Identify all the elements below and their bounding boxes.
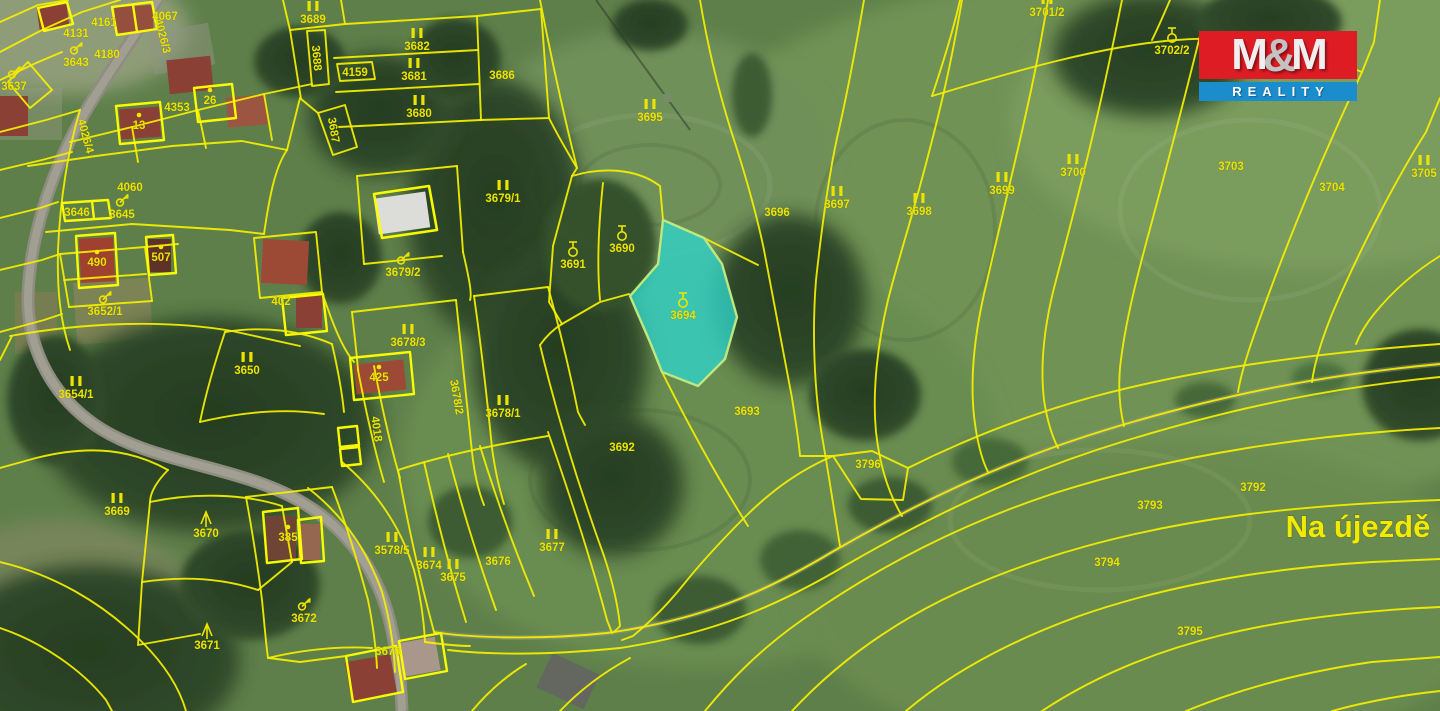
- svg-text:402: 402: [271, 296, 290, 308]
- logo-ampersand: &: [1263, 33, 1293, 77]
- svg-text:3654/1: 3654/1: [58, 389, 94, 401]
- svg-text:3678/3: 3678/3: [390, 337, 425, 349]
- svg-text:3702/2: 3702/2: [1154, 45, 1189, 57]
- parcel-label-4131: 4131: [63, 28, 89, 40]
- svg-text:3646: 3646: [64, 207, 90, 219]
- parcel-label-3794: 3794: [1094, 557, 1120, 569]
- parcel-label-3792: 3792: [1240, 482, 1266, 494]
- svg-text:4159: 4159: [342, 67, 368, 79]
- svg-text:3674: 3674: [416, 560, 442, 572]
- svg-text:3675: 3675: [440, 572, 466, 584]
- svg-text:3686: 3686: [489, 70, 515, 82]
- svg-text:3679/2: 3679/2: [385, 267, 420, 279]
- svg-text:26: 26: [204, 95, 217, 107]
- svg-text:3678/1: 3678/1: [485, 408, 521, 420]
- svg-text:3703: 3703: [1218, 161, 1244, 173]
- svg-text:3699: 3699: [989, 185, 1015, 197]
- parcel-label-3795: 3795: [1177, 626, 1203, 638]
- parcel-label-3704: 3704: [1319, 182, 1345, 194]
- parcel-label-3703: 3703: [1218, 161, 1244, 173]
- parcel-label-4060: 4060: [117, 182, 143, 194]
- svg-text:3673: 3673: [375, 646, 401, 658]
- svg-text:3705: 3705: [1411, 168, 1437, 180]
- svg-text:3650: 3650: [234, 365, 260, 377]
- parcel-label-3793: 3793: [1137, 500, 1163, 512]
- parcel-label-4353: 4353: [164, 102, 190, 114]
- svg-text:4353: 4353: [164, 102, 190, 114]
- svg-text:3692: 3692: [609, 442, 635, 454]
- map-viewport[interactable]: 4067413141614180364336374026/34026/41326…: [0, 0, 1440, 711]
- svg-text:3681: 3681: [401, 71, 427, 83]
- parcel-label-3696: 3696: [764, 207, 790, 219]
- parcel-label-3673: 3673: [375, 646, 401, 658]
- svg-text:3688: 3688: [309, 45, 323, 72]
- parcel-label-4180: 4180: [94, 49, 120, 61]
- svg-text:3643: 3643: [63, 57, 89, 69]
- svg-text:507: 507: [151, 252, 170, 264]
- svg-text:4060: 4060: [117, 182, 143, 194]
- svg-text:4131: 4131: [63, 28, 89, 40]
- svg-text:3676: 3676: [485, 556, 511, 568]
- svg-text:3695: 3695: [637, 112, 663, 124]
- svg-text:3696: 3696: [764, 207, 790, 219]
- parcel-label-3693: 3693: [734, 406, 760, 418]
- logo-m1: M: [1231, 33, 1265, 77]
- svg-text:425: 425: [369, 372, 389, 384]
- svg-text:3701/2: 3701/2: [1029, 7, 1064, 19]
- cadastral-map[interactable]: 4067413141614180364336374026/34026/41326…: [0, 0, 1440, 711]
- svg-text:3637: 3637: [1, 81, 27, 93]
- svg-text:3669: 3669: [104, 506, 130, 518]
- svg-text:3690: 3690: [609, 243, 635, 255]
- parcel-label-3688: 3688: [309, 45, 323, 72]
- parcel-label-3676: 3676: [485, 556, 511, 568]
- svg-text:3679/1: 3679/1: [485, 193, 521, 205]
- svg-text:3697: 3697: [824, 199, 850, 211]
- parcel-label-4161: 4161: [91, 17, 117, 29]
- svg-text:3698: 3698: [906, 206, 932, 218]
- parcel-label-3796: 3796: [855, 459, 881, 471]
- svg-text:3670: 3670: [193, 528, 219, 540]
- parcel-label-402: 402: [271, 296, 290, 308]
- svg-text:4161: 4161: [91, 17, 117, 29]
- svg-text:3652/1: 3652/1: [87, 306, 123, 318]
- svg-text:3672: 3672: [291, 613, 317, 625]
- parcel-label-3646: 3646: [64, 207, 90, 219]
- svg-text:3691: 3691: [560, 259, 586, 271]
- logo-reality: REALITY: [1199, 82, 1357, 101]
- svg-text:4180: 4180: [94, 49, 120, 61]
- svg-text:3693: 3693: [734, 406, 760, 418]
- svg-text:3704: 3704: [1319, 182, 1345, 194]
- svg-text:3680: 3680: [406, 108, 432, 120]
- svg-text:490: 490: [87, 257, 106, 269]
- parcel-label-3692: 3692: [609, 442, 635, 454]
- svg-text:3795: 3795: [1177, 626, 1203, 638]
- svg-text:3671: 3671: [194, 640, 220, 652]
- svg-text:385: 385: [278, 532, 298, 544]
- mm-reality-logo: M&M REALITY: [1199, 31, 1357, 101]
- svg-text:3700: 3700: [1060, 167, 1086, 179]
- svg-text:13: 13: [133, 120, 146, 132]
- svg-text:3689: 3689: [300, 14, 326, 26]
- parcel-label-3686: 3686: [489, 70, 515, 82]
- svg-text:3682: 3682: [404, 41, 430, 53]
- parcel-label-4159: 4159: [342, 67, 368, 79]
- area-name-label: Na újezdě: [1286, 509, 1431, 544]
- logo-mm: M&M: [1199, 31, 1357, 79]
- svg-text:3645: 3645: [109, 209, 135, 221]
- logo-m2: M: [1291, 33, 1325, 77]
- svg-text:3794: 3794: [1094, 557, 1120, 569]
- svg-text:3796: 3796: [855, 459, 881, 471]
- svg-text:3578/5: 3578/5: [374, 545, 410, 557]
- svg-text:3677: 3677: [539, 542, 565, 554]
- svg-text:3792: 3792: [1240, 482, 1266, 494]
- svg-text:3793: 3793: [1137, 500, 1163, 512]
- svg-text:3694: 3694: [670, 310, 696, 322]
